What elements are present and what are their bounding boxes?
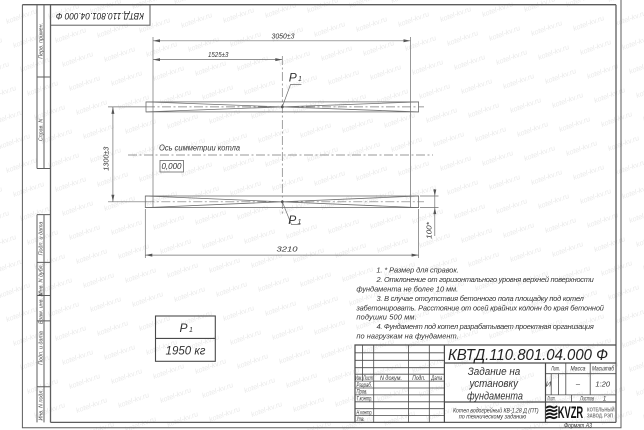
svg-text:kotel-kv.ru: kotel-kv.ru [481, 148, 515, 168]
svg-text:–: – [575, 380, 581, 389]
svg-text:kotel-kv.ru: kotel-kv.ru [271, 322, 305, 342]
svg-text:kotel-kv.ru: kotel-kv.ru [250, 101, 284, 121]
svg-text:kotel-kv.ru: kotel-kv.ru [124, 116, 158, 136]
svg-text:kotel-kv.ru: kotel-kv.ru [628, 354, 644, 374]
svg-text:kotel-kv.ru: kotel-kv.ru [376, 235, 410, 255]
svg-text:Подп. и дата: Подп. и дата [38, 331, 44, 365]
svg-text:kotel-kv.ru: kotel-kv.ru [103, 193, 137, 213]
svg-text:kotel-kv.ru: kotel-kv.ru [607, 133, 641, 153]
svg-text:kotel-kv.ru: kotel-kv.ru [621, 330, 644, 350]
svg-text:kotel-kv.ru: kotel-kv.ru [306, 0, 340, 15]
svg-text:kotel-kv.ru: kotel-kv.ru [313, 168, 347, 188]
svg-text:kotel-kv.ru: kotel-kv.ru [418, 81, 452, 101]
svg-text:kotel-kv.ru: kotel-kv.ru [54, 323, 88, 343]
svg-text:kotel-kv.ru: kotel-kv.ru [572, 13, 606, 33]
svg-text:kotel-kv.ru: kotel-kv.ru [96, 318, 130, 338]
svg-text:kotel-kv.ru: kotel-kv.ru [341, 264, 375, 284]
svg-text:установку: установку [469, 378, 520, 390]
svg-text:Инв. N дубл.: Инв. N дубл. [38, 264, 44, 295]
svg-text:kotel-kv.ru: kotel-kv.ru [439, 4, 473, 24]
svg-text:P: P [180, 321, 188, 335]
svg-text:kotel-kv.ru: kotel-kv.ru [320, 341, 354, 361]
svg-text:kotel-kv.ru: kotel-kv.ru [110, 68, 144, 88]
svg-text:kotel-kv.ru: kotel-kv.ru [390, 134, 424, 154]
svg-text:0,000: 0,000 [161, 162, 182, 171]
svg-text:2. Отклонение от горизонтально: 2. Отклонение от горизонтального уровня … [376, 275, 594, 284]
svg-text:kotel-kv.ru: kotel-kv.ru [0, 0, 31, 2]
svg-text:kotel-kv.ru: kotel-kv.ru [19, 54, 53, 74]
svg-text:kotel-kv.ru: kotel-kv.ru [537, 191, 571, 211]
svg-text:kotel-kv.ru: kotel-kv.ru [432, 129, 466, 149]
svg-text:kotel-kv.ru: kotel-kv.ru [131, 289, 165, 309]
svg-text:kotel-kv.ru: kotel-kv.ru [96, 169, 130, 189]
svg-text:100*: 100* [425, 221, 434, 239]
svg-text:Лит.: Лит. [550, 367, 560, 373]
svg-text:kotel-kv.ru: kotel-kv.ru [159, 385, 193, 405]
svg-text:kotel-kv.ru: kotel-kv.ru [495, 196, 529, 216]
svg-text:kotel-kv.ru: kotel-kv.ru [40, 275, 74, 295]
svg-text:kotel-kv.ru: kotel-kv.ru [579, 186, 613, 206]
svg-text:1:20: 1:20 [595, 380, 610, 389]
svg-text:kotel-kv.ru: kotel-kv.ru [61, 198, 95, 218]
svg-text:Дата: Дата [431, 376, 443, 382]
svg-text:kotel-kv.ru: kotel-kv.ru [488, 23, 522, 43]
svg-text:kotel-kv.ru: kotel-kv.ru [257, 125, 291, 145]
svg-text:kotel-kv.ru: kotel-kv.ru [145, 39, 179, 59]
svg-text:Листов: Листов [579, 397, 594, 403]
svg-text:kotel-kv.ru: kotel-kv.ru [145, 188, 179, 208]
svg-text:kotel-kv.ru: kotel-kv.ru [635, 229, 644, 249]
svg-text:kotel-kv.ru: kotel-kv.ru [558, 114, 592, 134]
svg-text:1: 1 [189, 327, 193, 334]
svg-text:kotel-kv.ru: kotel-kv.ru [166, 260, 200, 280]
svg-text:kotel-kv.ru: kotel-kv.ru [215, 279, 249, 299]
svg-text:kotel-kv.ru: kotel-kv.ru [201, 82, 235, 102]
svg-text:kotel-kv.ru: kotel-kv.ru [54, 174, 88, 194]
svg-text:kotel-kv.ru: kotel-kv.ru [208, 404, 242, 424]
svg-text:Лист.: Лист. [547, 397, 556, 403]
svg-text:KVZR: KVZR [558, 404, 584, 422]
svg-text:kotel-kv.ru: kotel-kv.ru [201, 231, 235, 251]
svg-text:kotel-kv.ru: kotel-kv.ru [411, 57, 445, 77]
svg-text:kotel-kv.ru: kotel-kv.ru [397, 9, 431, 29]
svg-text:kotel-kv.ru: kotel-kv.ru [243, 226, 277, 246]
svg-text:3210: 3210 [277, 244, 299, 253]
svg-text:КОТЕЛЬНЫЙ: КОТЕЛЬНЫЙ [587, 405, 615, 413]
svg-text:kotel-kv.ru: kotel-kv.ru [5, 6, 39, 26]
svg-text:3. В случае отсутствия бетонно: 3. В случае отсутствия бетонного пола пл… [377, 294, 585, 303]
svg-text:kotel-kv.ru: kotel-kv.ru [159, 87, 193, 107]
svg-text:kotel-kv.ru: kotel-kv.ru [544, 215, 578, 235]
svg-text:kotel-kv.ru: kotel-kv.ru [453, 201, 487, 221]
svg-text:Инв. N подл.: Инв. N подл. [38, 389, 44, 421]
svg-text:kotel-kv.ru: kotel-kv.ru [621, 32, 644, 52]
svg-text:Масштаб: Масштаб [592, 367, 614, 373]
svg-text:kotel-kv.ru: kotel-kv.ru [229, 327, 263, 347]
svg-text:kotel-kv.ru: kotel-kv.ru [355, 163, 389, 183]
svg-text:kotel-kv.ru: kotel-kv.ru [19, 203, 53, 223]
svg-text:kotel-kv.ru: kotel-kv.ru [523, 143, 557, 163]
svg-text:kotel-kv.ru: kotel-kv.ru [0, 59, 10, 79]
svg-text:kotel-kv.ru: kotel-kv.ru [488, 172, 522, 192]
svg-text:kotel-kv.ru: kotel-kv.ru [614, 8, 644, 28]
svg-text:kotel-kv.ru: kotel-kv.ru [453, 52, 487, 72]
svg-text:kotel-kv.ru: kotel-kv.ru [516, 119, 550, 139]
svg-text:Н.контр.: Н.контр. [357, 410, 373, 416]
svg-text:kotel-kv.ru: kotel-kv.ru [54, 25, 88, 45]
svg-text:kotel-kv.ru: kotel-kv.ru [82, 121, 116, 141]
svg-text:kotel-kv.ru: kotel-kv.ru [215, 0, 249, 1]
svg-text:Разраб.: Разраб. [357, 383, 373, 389]
svg-text:kotel-kv.ru: kotel-kv.ru [544, 66, 578, 86]
svg-text:kotel-kv.ru: kotel-kv.ru [236, 351, 270, 371]
svg-text:kotel-kv.ru: kotel-kv.ru [75, 97, 109, 117]
svg-text:kotel-kv.ru: kotel-kv.ru [551, 90, 585, 110]
svg-text:kotel-kv.ru: kotel-kv.ru [152, 212, 186, 232]
svg-text:kotel-kv.ru: kotel-kv.ru [117, 92, 151, 112]
svg-text:N докум.: N докум. [380, 376, 402, 382]
svg-text:P: P [288, 213, 296, 227]
svg-text:1950 кг: 1950 кг [166, 346, 206, 358]
svg-text:kotel-kv.ru: kotel-kv.ru [460, 76, 494, 96]
svg-text:kotel-kv.ru: kotel-kv.ru [264, 149, 298, 169]
svg-text:kotel-kv.ru: kotel-kv.ru [0, 232, 17, 252]
svg-text:kotel-kv.ru: kotel-kv.ru [19, 352, 53, 372]
svg-text:kotel-kv.ru: kotel-kv.ru [467, 249, 501, 269]
svg-text:kotel-kv.ru: kotel-kv.ru [47, 299, 81, 319]
svg-text:kotel-kv.ru: kotel-kv.ru [75, 395, 109, 415]
svg-text:kotel-kv.ru: kotel-kv.ru [614, 157, 644, 177]
svg-text:kotel-kv.ru: kotel-kv.ru [628, 56, 644, 76]
svg-text:kotel-kv.ru: kotel-kv.ru [369, 211, 403, 231]
svg-text:kotel-kv.ru: kotel-kv.ru [0, 184, 3, 204]
svg-text:kotel-kv.ru: kotel-kv.ru [236, 53, 270, 73]
svg-text:Ось симметрии котла: Ось симметрии котла [159, 144, 240, 153]
svg-text:P: P [289, 71, 297, 85]
svg-text:фундамента: фундамента [467, 390, 523, 402]
svg-text:kotel-kv.ru: kotel-kv.ru [82, 419, 116, 430]
svg-text:kotel-kv.ru: kotel-kv.ru [481, 0, 515, 19]
svg-text:kotel-kv.ru: kotel-kv.ru [530, 18, 564, 38]
svg-text:kotel-kv.ru: kotel-kv.ru [0, 35, 3, 55]
svg-text:1: 1 [298, 219, 302, 226]
svg-text:kotel-kv.ru: kotel-kv.ru [271, 173, 305, 193]
svg-text:kotel-kv.ru: kotel-kv.ru [110, 366, 144, 386]
svg-text:1300±3: 1300±3 [102, 146, 111, 171]
svg-text:kotel-kv.ru: kotel-kv.ru [446, 28, 480, 48]
svg-text:kotel-kv.ru: kotel-kv.ru [607, 282, 641, 302]
svg-text:kotel-kv.ru: kotel-kv.ru [61, 49, 95, 69]
svg-text:kotel-kv.ru: kotel-kv.ru [236, 202, 270, 222]
svg-text:kotel-kv.ru: kotel-kv.ru [180, 159, 214, 179]
svg-text:1: 1 [603, 397, 606, 403]
svg-text:kotel-kv.ru: kotel-kv.ru [425, 105, 459, 125]
svg-text:kotel-kv.ru: kotel-kv.ru [264, 0, 298, 20]
svg-text:kotel-kv.ru: kotel-kv.ru [250, 399, 284, 419]
svg-text:kotel-kv.ru: kotel-kv.ru [5, 155, 39, 175]
svg-text:kotel-kv.ru: kotel-kv.ru [68, 222, 102, 242]
svg-text:kotel-kv.ru: kotel-kv.ru [418, 379, 452, 399]
svg-text:Подп.: Подп. [412, 376, 425, 382]
svg-text:kotel-kv.ru: kotel-kv.ru [621, 181, 644, 201]
svg-text:kotel-kv.ru: kotel-kv.ru [124, 265, 158, 285]
svg-text:kotel-kv.ru: kotel-kv.ru [117, 390, 151, 410]
svg-text:kotel-kv.ru: kotel-kv.ru [257, 274, 291, 294]
svg-text:Пров.: Пров. [357, 390, 368, 396]
svg-text:4. Фундамент под котел разраба: 4. Фундамент под котел разрабатывает про… [377, 322, 594, 331]
svg-text:И: И [546, 380, 552, 389]
svg-text:КВТД.110.801.04.000 Ф: КВТД.110.801.04.000 Ф [56, 11, 144, 21]
svg-text:Т.контр.: Т.контр. [357, 397, 373, 403]
svg-text:по техническому заданию: по техническому заданию [459, 414, 527, 420]
svg-text:kotel-kv.ru: kotel-kv.ru [292, 394, 326, 414]
svg-text:kotel-kv.ru: kotel-kv.ru [348, 139, 382, 159]
svg-text:kotel-kv.ru: kotel-kv.ru [166, 409, 200, 429]
svg-text:kotel-kv.ru: kotel-kv.ru [103, 342, 137, 362]
svg-text:kotel-kv.ru: kotel-kv.ru [201, 380, 235, 400]
svg-text:kotel-kv.ru: kotel-kv.ru [5, 304, 39, 324]
svg-text:kotel-kv.ru: kotel-kv.ru [278, 48, 312, 68]
svg-text:kotel-kv.ru: kotel-kv.ru [152, 63, 186, 83]
svg-text:kotel-kv.ru: kotel-kv.ru [187, 183, 221, 203]
svg-text:kotel-kv.ru: kotel-kv.ru [222, 154, 256, 174]
svg-text:3050±3: 3050±3 [272, 32, 296, 41]
svg-text:Подп. и дата: Подп. и дата [38, 222, 44, 256]
svg-text:Задание на: Задание на [468, 366, 521, 378]
svg-text:kotel-kv.ru: kotel-kv.ru [404, 33, 438, 53]
svg-text:kotel-kv.ru: kotel-kv.ru [334, 240, 368, 260]
svg-text:kotel-kv.ru: kotel-kv.ru [362, 38, 396, 58]
svg-text:kotel-kv.ru: kotel-kv.ru [229, 29, 263, 49]
svg-text:фундамента не более 10 мм.: фундамента не более 10 мм. [356, 285, 458, 294]
svg-text:kotel-kv.ru: kotel-kv.ru [0, 208, 10, 228]
svg-text:kotel-kv.ru: kotel-kv.ru [313, 317, 347, 337]
svg-text:kotel-kv.ru: kotel-kv.ru [376, 384, 410, 404]
svg-text:Утв.: Утв. [356, 417, 365, 423]
svg-text:kotel-kv.ru: kotel-kv.ru [635, 378, 644, 398]
svg-text:подушки 500 мм.: подушки 500 мм. [356, 313, 416, 322]
svg-text:kotel-kv.ru: kotel-kv.ru [306, 293, 340, 313]
svg-text:kotel-kv.ru: kotel-kv.ru [299, 120, 333, 140]
svg-text:забетонировать. Расстояние от: забетонировать. Расстояние от осей крайн… [355, 303, 604, 312]
svg-text:kotel-kv.ru: kotel-kv.ru [306, 144, 340, 164]
svg-text:kotel-kv.ru: kotel-kv.ru [26, 78, 60, 98]
svg-text:Формат А3: Формат А3 [564, 423, 593, 429]
svg-text:kotel-kv.ru: kotel-kv.ru [467, 100, 501, 120]
svg-text:kotel-kv.ru: kotel-kv.ru [327, 216, 361, 236]
svg-text:kotel-kv.ru: kotel-kv.ru [173, 284, 207, 304]
svg-text:kotel-kv.ru: kotel-kv.ru [474, 124, 508, 144]
svg-text:1: 1 [298, 76, 302, 83]
svg-text:kotel-kv.ru: kotel-kv.ru [89, 294, 123, 314]
svg-text:kotel-kv.ru: kotel-kv.ru [68, 371, 102, 391]
svg-text:kotel-kv.ru: kotel-kv.ru [635, 80, 644, 100]
svg-text:kotel-kv.ru: kotel-kv.ru [614, 306, 644, 326]
svg-text:Масса: Масса [571, 367, 587, 373]
svg-text:kotel-kv.ru: kotel-kv.ru [194, 207, 228, 227]
svg-text:kotel-kv.ru: kotel-kv.ru [404, 182, 438, 202]
svg-text:kotel-kv.ru: kotel-kv.ru [509, 95, 543, 115]
svg-text:kotel-kv.ru: kotel-kv.ru [243, 77, 277, 97]
svg-text:kotel-kv.ru: kotel-kv.ru [327, 67, 361, 87]
svg-text:kotel-kv.ru: kotel-kv.ru [166, 111, 200, 131]
svg-text:kotel-kv.ru: kotel-kv.ru [537, 42, 571, 62]
svg-text:1525±3: 1525±3 [208, 50, 229, 59]
svg-text:kotel-kv.ru: kotel-kv.ru [383, 408, 417, 428]
svg-text:kotel-kv.ru: kotel-kv.ru [152, 361, 186, 381]
svg-text:kotel-kv.ru: kotel-kv.ru [320, 43, 354, 63]
svg-text:kotel-kv.ru: kotel-kv.ru [586, 210, 620, 230]
svg-text:kotel-kv.ru: kotel-kv.ru [369, 62, 403, 82]
svg-text:kotel-kv.ru: kotel-kv.ru [0, 83, 17, 103]
svg-text:КВТД.110.801.04.000 Ф: КВТД.110.801.04.000 Ф [448, 347, 608, 364]
svg-text:kotel-kv.ru: kotel-kv.ru [68, 73, 102, 93]
svg-text:kotel-kv.ru: kotel-kv.ru [460, 225, 494, 245]
svg-text:kotel-kv.ru: kotel-kv.ru [82, 270, 116, 290]
svg-text:kotel-kv.ru: kotel-kv.ru [222, 5, 256, 25]
svg-text:kotel-kv.ru: kotel-kv.ru [313, 19, 347, 39]
svg-text:kotel-kv.ru: kotel-kv.ru [565, 138, 599, 158]
svg-text:kotel-kv.ru: kotel-kv.ru [194, 356, 228, 376]
svg-text:kotel-kv.ru: kotel-kv.ru [572, 162, 606, 182]
svg-text:kotel-kv.ru: kotel-kv.ru [0, 256, 24, 276]
svg-text:kotel-kv.ru: kotel-kv.ru [159, 236, 193, 256]
svg-text:kotel-kv.ru: kotel-kv.ru [180, 10, 214, 30]
svg-text:kotel-kv.ru: kotel-kv.ru [40, 126, 74, 146]
svg-text:kotel-kv.ru: kotel-kv.ru [12, 179, 46, 199]
svg-text:kotel-kv.ru: kotel-kv.ru [502, 220, 536, 240]
svg-text:kotel-kv.ru: kotel-kv.ru [502, 71, 536, 91]
svg-text:Изм.: Изм. [355, 376, 362, 382]
svg-text:kotel-kv.ru: kotel-kv.ru [131, 0, 165, 11]
svg-text:kotel-kv.ru: kotel-kv.ru [285, 370, 319, 390]
svg-text:kotel-kv.ru: kotel-kv.ru [208, 255, 242, 275]
svg-text:kotel-kv.ru: kotel-kv.ru [278, 346, 312, 366]
svg-text:ЗАВОД. РЭП: ЗАВОД. РЭП [587, 413, 613, 419]
svg-text:kotel-kv.ru: kotel-kv.ru [229, 178, 263, 198]
svg-text:kotel-kv.ru: kotel-kv.ru [110, 217, 144, 237]
svg-text:kotel-kv.ru: kotel-kv.ru [509, 244, 543, 264]
svg-text:kotel-kv.ru: kotel-kv.ru [551, 239, 585, 259]
svg-text:kotel-kv.ru: kotel-kv.ru [411, 355, 445, 375]
svg-text:Взам. инв. N: Взам. инв. N [38, 292, 44, 324]
svg-text:kotel-kv.ru: kotel-kv.ru [0, 131, 31, 151]
svg-text:kotel-kv.ru: kotel-kv.ru [355, 14, 389, 34]
svg-text:по нагрузкам на фундамент.: по нагрузкам на фундамент. [356, 332, 458, 341]
svg-text:Лист: Лист [362, 376, 373, 382]
svg-text:kotel-kv.ru: kotel-kv.ru [299, 269, 333, 289]
svg-text:kotel-kv.ru: kotel-kv.ru [0, 280, 31, 300]
svg-text:kotel-kv.ru: kotel-kv.ru [383, 110, 417, 130]
svg-text:kotel-kv.ru: kotel-kv.ru [446, 177, 480, 197]
svg-text:kotel-kv.ru: kotel-kv.ru [530, 167, 564, 187]
svg-text:kotel-kv.ru: kotel-kv.ru [0, 107, 24, 127]
svg-text:kotel-kv.ru: kotel-kv.ru [194, 58, 228, 78]
svg-text:kotel-kv.ru: kotel-kv.ru [341, 115, 375, 135]
svg-text:kotel-kv.ru: kotel-kv.ru [103, 44, 137, 64]
svg-text:kotel-kv.ru: kotel-kv.ru [96, 20, 130, 40]
svg-text:kotel-kv.ru: kotel-kv.ru [222, 303, 256, 323]
svg-text:kotel-kv.ru: kotel-kv.ru [61, 347, 95, 367]
svg-text:kotel-kv.ru: kotel-kv.ru [579, 37, 613, 57]
svg-text:kotel-kv.ru: kotel-kv.ru [523, 0, 557, 14]
svg-text:kotel-kv.ru: kotel-kv.ru [264, 298, 298, 318]
svg-text:kotel-kv.ru: kotel-kv.ru [47, 150, 81, 170]
svg-text:kotel-kv.ru: kotel-kv.ru [243, 375, 277, 395]
svg-text:Справ. N: Справ. N [38, 119, 44, 142]
svg-text:kotel-kv.ru: kotel-kv.ru [397, 158, 431, 178]
svg-text:1. * Размер для справок.: 1. * Размер для справок. [376, 266, 458, 275]
svg-text:kotel-kv.ru: kotel-kv.ru [334, 91, 368, 111]
svg-text:kotel-kv.ru: kotel-kv.ru [607, 0, 641, 4]
svg-text:kotel-kv.ru: kotel-kv.ru [439, 153, 473, 173]
svg-text:kotel-kv.ru: kotel-kv.ru [628, 205, 644, 225]
svg-text:kotel-kv.ru: kotel-kv.ru [586, 61, 620, 81]
svg-text:kotel-kv.ru: kotel-kv.ru [75, 246, 109, 266]
svg-text:kotel-kv.ru: kotel-kv.ru [495, 47, 529, 67]
svg-text:Перв. примен.: Перв. примен. [38, 23, 44, 59]
